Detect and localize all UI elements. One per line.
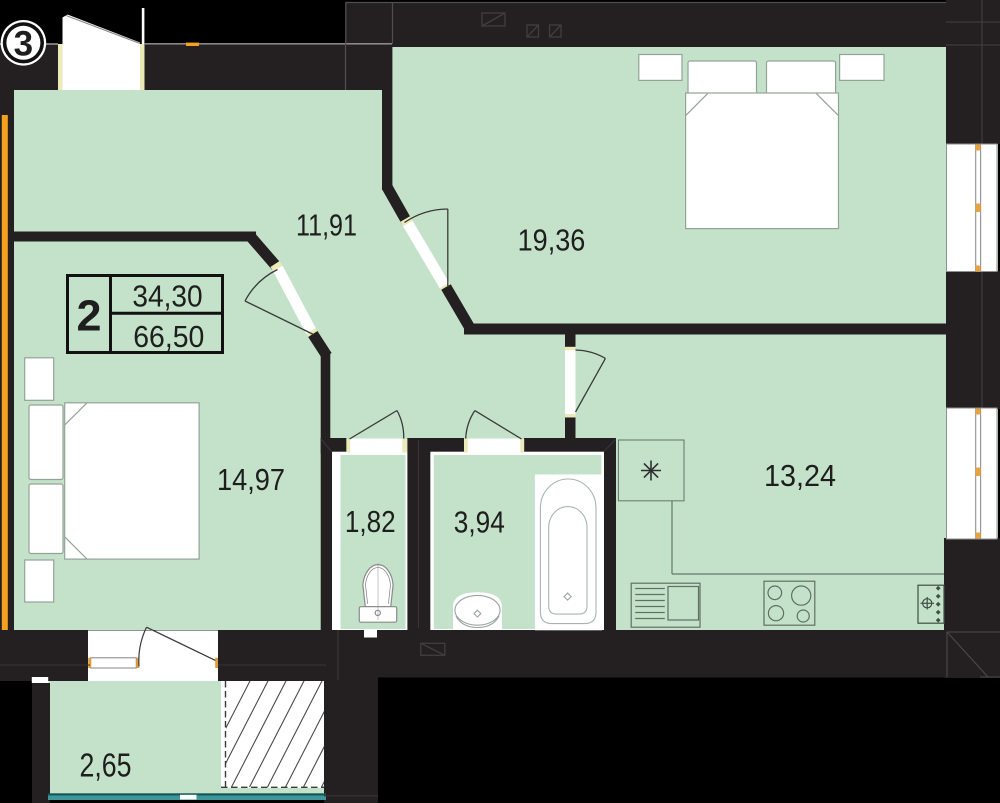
- svg-text:14,97: 14,97: [217, 462, 285, 497]
- svg-text:13,24: 13,24: [764, 458, 836, 493]
- svg-text:2,65: 2,65: [80, 747, 132, 784]
- svg-text:3,94: 3,94: [454, 505, 505, 540]
- svg-text:3: 3: [14, 24, 33, 63]
- svg-text:2: 2: [77, 292, 102, 341]
- svg-text:66,50: 66,50: [133, 319, 204, 354]
- svg-text:11,91: 11,91: [296, 208, 357, 243]
- svg-text:34,30: 34,30: [132, 278, 202, 313]
- svg-text:1,82: 1,82: [345, 504, 396, 539]
- svg-text:19,36: 19,36: [518, 223, 586, 258]
